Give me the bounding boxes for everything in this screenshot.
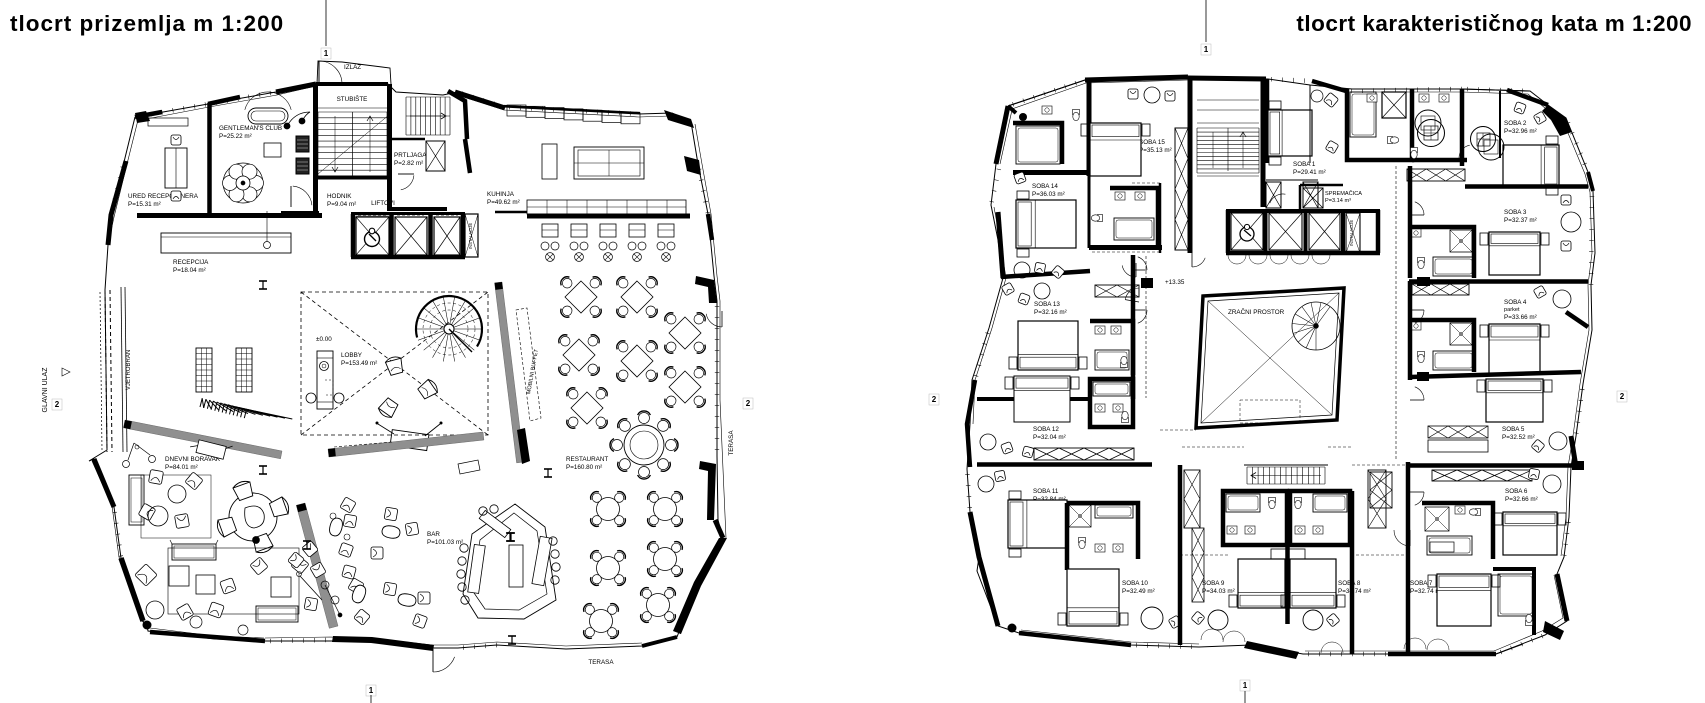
svg-text:2: 2 <box>746 399 751 408</box>
svg-text:SOBA 14: SOBA 14 <box>1032 183 1058 190</box>
svg-text:KUHINJA: KUHINJA <box>487 191 515 198</box>
svg-text:P=160.80 m²: P=160.80 m² <box>566 464 602 471</box>
svg-text:RESTAURANT: RESTAURANT <box>566 456 608 463</box>
svg-text:+13.35: +13.35 <box>1165 279 1185 286</box>
svg-text:SOBA 4: SOBA 4 <box>1504 299 1527 306</box>
svg-text:P=101.03 m²: P=101.03 m² <box>427 539 463 546</box>
svg-text:2: 2 <box>1620 392 1625 401</box>
svg-text:SOBA 3: SOBA 3 <box>1504 209 1527 216</box>
svg-text:STUBIŠTE: STUBIŠTE <box>337 94 368 103</box>
svg-text:GENTLEMAN'S CLUB: GENTLEMAN'S CLUB <box>219 125 282 132</box>
svg-text:P=3.14 m³: P=3.14 m³ <box>1325 198 1351 204</box>
svg-text:ZRAČNI PROSTOR: ZRAČNI PROSTOR <box>1228 307 1285 316</box>
svg-text:±0.00: ±0.00 <box>316 336 332 343</box>
svg-text:P=32.52 m²: P=32.52 m² <box>1502 434 1535 441</box>
svg-text:P=32.04 m²: P=32.04 m² <box>1033 434 1066 441</box>
svg-text:1: 1 <box>1243 681 1248 690</box>
svg-text:SOBA 6: SOBA 6 <box>1505 488 1528 495</box>
svg-text:SOBA 5: SOBA 5 <box>1502 426 1525 433</box>
svg-text:P=32.37 m²: P=32.37 m² <box>1504 217 1537 224</box>
svg-text:parket: parket <box>1504 307 1520 313</box>
svg-text:P=32.96 m²: P=32.96 m² <box>1504 128 1537 135</box>
svg-text:P=32.49 m²: P=32.49 m² <box>1122 588 1155 595</box>
svg-text:URED RECEPCIONERA: URED RECEPCIONERA <box>128 193 199 200</box>
svg-text:P=2.82 m²: P=2.82 m² <box>394 160 423 167</box>
svg-text:SOBA 12: SOBA 12 <box>1033 426 1059 433</box>
svg-text:VJETROBRAN: VJETROBRAN <box>126 350 132 390</box>
svg-text:RECEPCIJA: RECEPCIJA <box>173 259 209 266</box>
svg-text:SOBA 11: SOBA 11 <box>1033 488 1059 495</box>
svg-text:IZLAZ: IZLAZ <box>344 64 361 71</box>
svg-text:P=25.22 m²: P=25.22 m² <box>219 133 252 140</box>
svg-text:tlocrt karakterističnog kata: tlocrt karakterističnog kata m 1:200 <box>1296 11 1692 36</box>
svg-text:SOBA 2: SOBA 2 <box>1504 120 1527 127</box>
svg-text:P=84.01 m²: P=84.01 m² <box>165 464 198 471</box>
svg-text:SOBA 7: SOBA 7 <box>1410 580 1433 587</box>
svg-text:P=34.03 m²: P=34.03 m² <box>1202 588 1235 595</box>
svg-text:SOBA 13: SOBA 13 <box>1034 301 1060 308</box>
svg-text:P=35.13 m²: P=35.13 m² <box>1139 147 1172 154</box>
svg-text:DNEVNI BORAVAK: DNEVNI BORAVAK <box>165 456 221 463</box>
svg-text:SOBA 1: SOBA 1 <box>1293 161 1316 168</box>
svg-text:TERASA: TERASA <box>588 659 614 666</box>
svg-text:GLAVNI ULAZ: GLAVNI ULAZ <box>42 367 49 413</box>
svg-text:1: 1 <box>369 686 374 695</box>
svg-text:P=18.04 m²: P=18.04 m² <box>173 267 206 274</box>
svg-text:LOBBY: LOBBY <box>341 352 363 359</box>
svg-text:2: 2 <box>55 400 60 409</box>
svg-text:P=29.41 m²: P=29.41 m² <box>1293 169 1326 176</box>
svg-text:BAR: BAR <box>427 531 440 538</box>
svg-text:P=32.66 m²: P=32.66 m² <box>1505 496 1538 503</box>
svg-text:P=153.49 m²: P=153.49 m² <box>341 360 377 367</box>
svg-text:2: 2 <box>932 395 937 404</box>
svg-text:1: 1 <box>1204 45 1209 54</box>
svg-text:LIFTOVI: LIFTOVI <box>371 200 395 207</box>
svg-text:TERASA: TERASA <box>728 430 735 456</box>
svg-text:P=32.16 m²: P=32.16 m² <box>1034 309 1067 316</box>
svg-text:PRTLJAGA: PRTLJAGA <box>394 152 427 159</box>
svg-text:SOBA 10: SOBA 10 <box>1122 580 1148 587</box>
svg-text:SOBA 9: SOBA 9 <box>1202 580 1225 587</box>
svg-text:P=49.62 m²: P=49.62 m² <box>487 199 520 206</box>
svg-text:INSTALACIJE: INSTALACIJE <box>468 223 473 249</box>
svg-text:P=9.04 m²: P=9.04 m² <box>327 201 356 208</box>
svg-text:HODNIK: HODNIK <box>327 193 352 200</box>
svg-text:SOBA 15: SOBA 15 <box>1139 139 1165 146</box>
svg-text:SOBA 8: SOBA 8 <box>1338 580 1361 587</box>
svg-text:1: 1 <box>324 49 329 58</box>
svg-text:tlocrt prizemlja m 1:200: tlocrt prizemlja m 1:200 <box>10 11 284 36</box>
svg-text:INSTALACIJE: INSTALACIJE <box>1349 220 1354 246</box>
svg-text:P=34.74 m²: P=34.74 m² <box>1338 588 1371 595</box>
svg-text:P=33.66 m²: P=33.66 m² <box>1504 314 1537 321</box>
svg-text:P=15.31 m²: P=15.31 m² <box>128 201 161 208</box>
svg-text:SPREMAČICA: SPREMAČICA <box>1325 190 1362 197</box>
svg-text:P=36.03 m²: P=36.03 m² <box>1032 191 1065 198</box>
